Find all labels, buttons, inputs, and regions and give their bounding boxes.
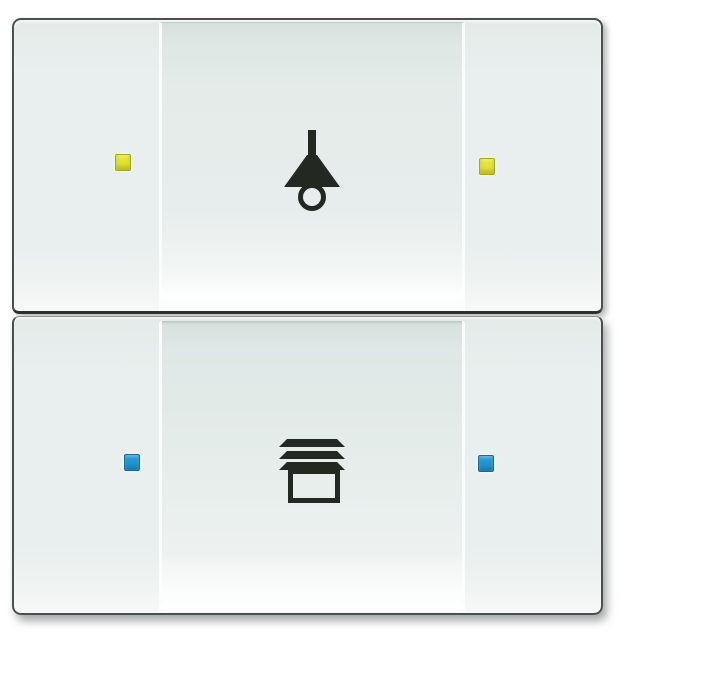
light-status-led-right — [479, 158, 495, 175]
blind-window-frame — [291, 472, 338, 501]
light-status-led-left — [115, 154, 131, 171]
blind-slat-2 — [279, 451, 345, 459]
blind-status-led-left — [124, 454, 140, 471]
blind-label-field — [159, 321, 465, 611]
blind-slat-1 — [279, 439, 345, 447]
wall-switch-panel — [12, 18, 603, 616]
blind-slat-3 — [279, 462, 345, 470]
blind-status-led-right — [478, 455, 494, 472]
product-photo-stage — [0, 0, 709, 695]
blinds-icon — [278, 437, 346, 507]
blind-control-module — [12, 316, 603, 615]
light-label-field — [159, 22, 465, 311]
pendant-lamp-icon — [280, 127, 344, 211]
lamp-stem — [308, 130, 316, 160]
light-rocker-left-button[interactable] — [14, 20, 159, 311]
lamp-bulb — [301, 186, 324, 209]
light-control-module — [12, 18, 603, 314]
